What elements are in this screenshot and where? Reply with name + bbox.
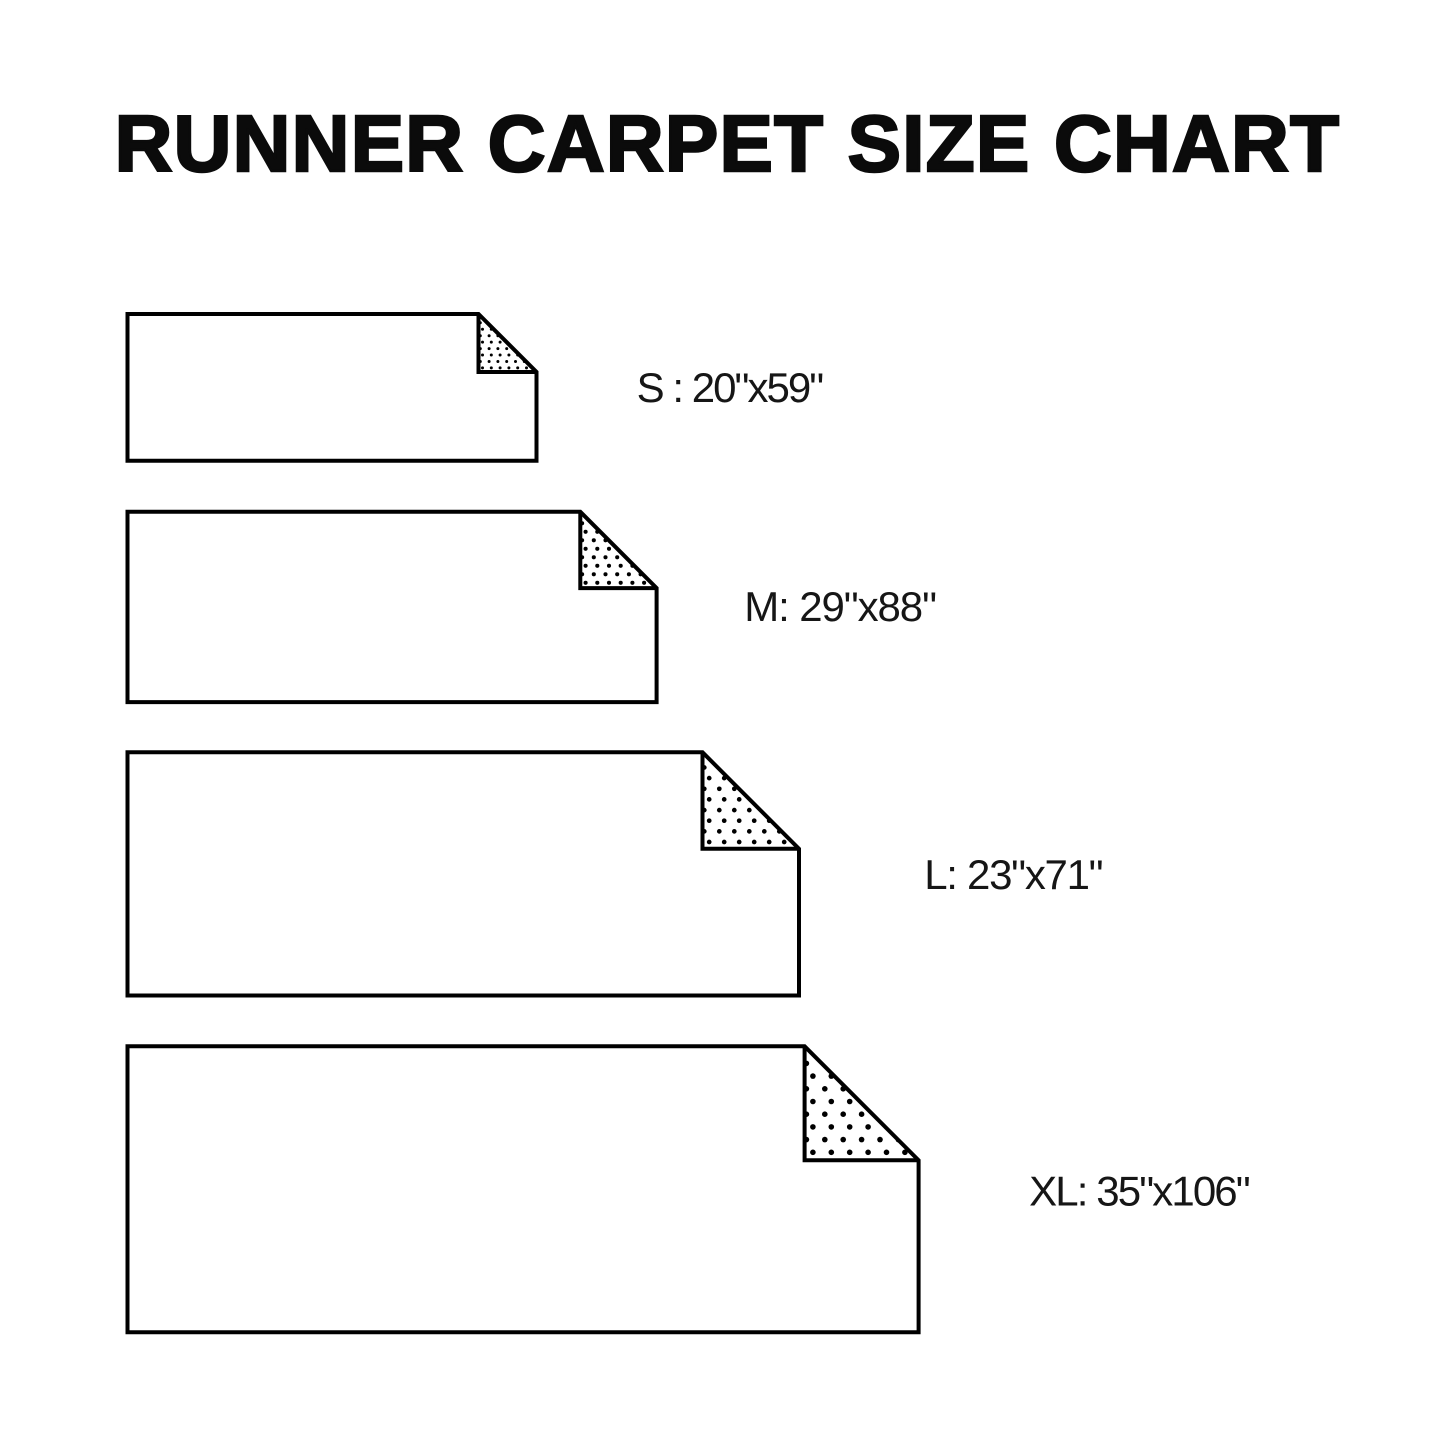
- svg-text:RUNNER CARPET SIZE CHART: RUNNER CARPET SIZE CHART: [115, 99, 1341, 188]
- svg-text:XL: 35"x106": XL: 35"x106": [1029, 1168, 1251, 1215]
- svg-text:M: 29"x88": M: 29"x88": [744, 583, 937, 630]
- svg-text:S : 20"x59": S : 20"x59": [637, 364, 825, 411]
- svg-text:L: 23"x71": L: 23"x71": [924, 851, 1103, 898]
